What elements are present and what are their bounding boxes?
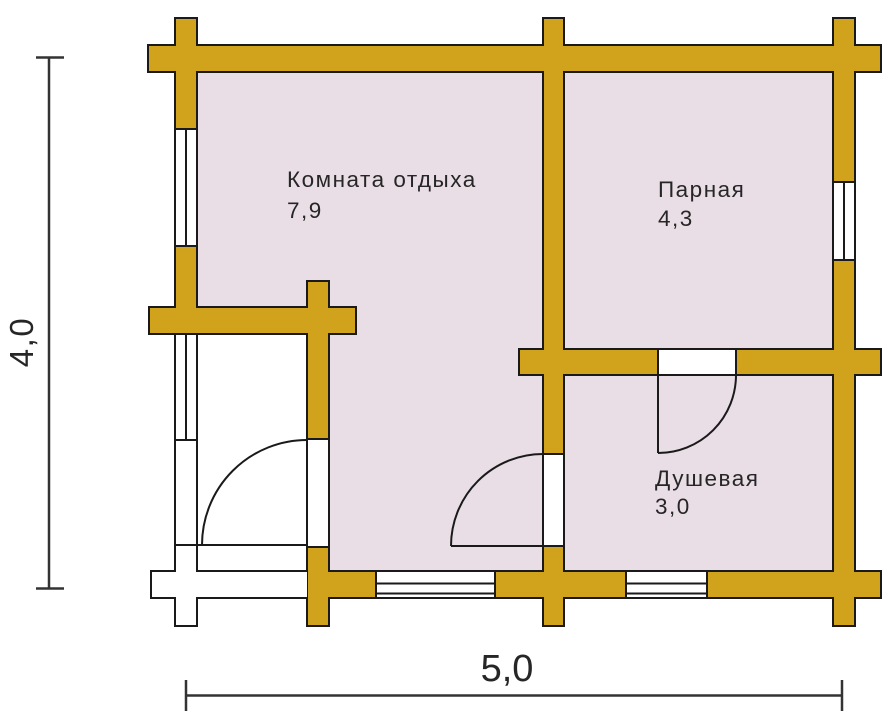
svg-text:5,0: 5,0 bbox=[481, 648, 534, 690]
svg-text:Душевая: Душевая bbox=[655, 466, 759, 491]
svg-text:4,0: 4,0 bbox=[3, 317, 40, 367]
svg-text:4,3: 4,3 bbox=[658, 206, 694, 231]
svg-text:7,9: 7,9 bbox=[287, 198, 323, 223]
svg-text:3,0: 3,0 bbox=[655, 494, 691, 519]
svg-text:Парная: Парная bbox=[658, 177, 745, 202]
svg-text:Комната отдыха: Комната отдыха bbox=[287, 167, 477, 192]
